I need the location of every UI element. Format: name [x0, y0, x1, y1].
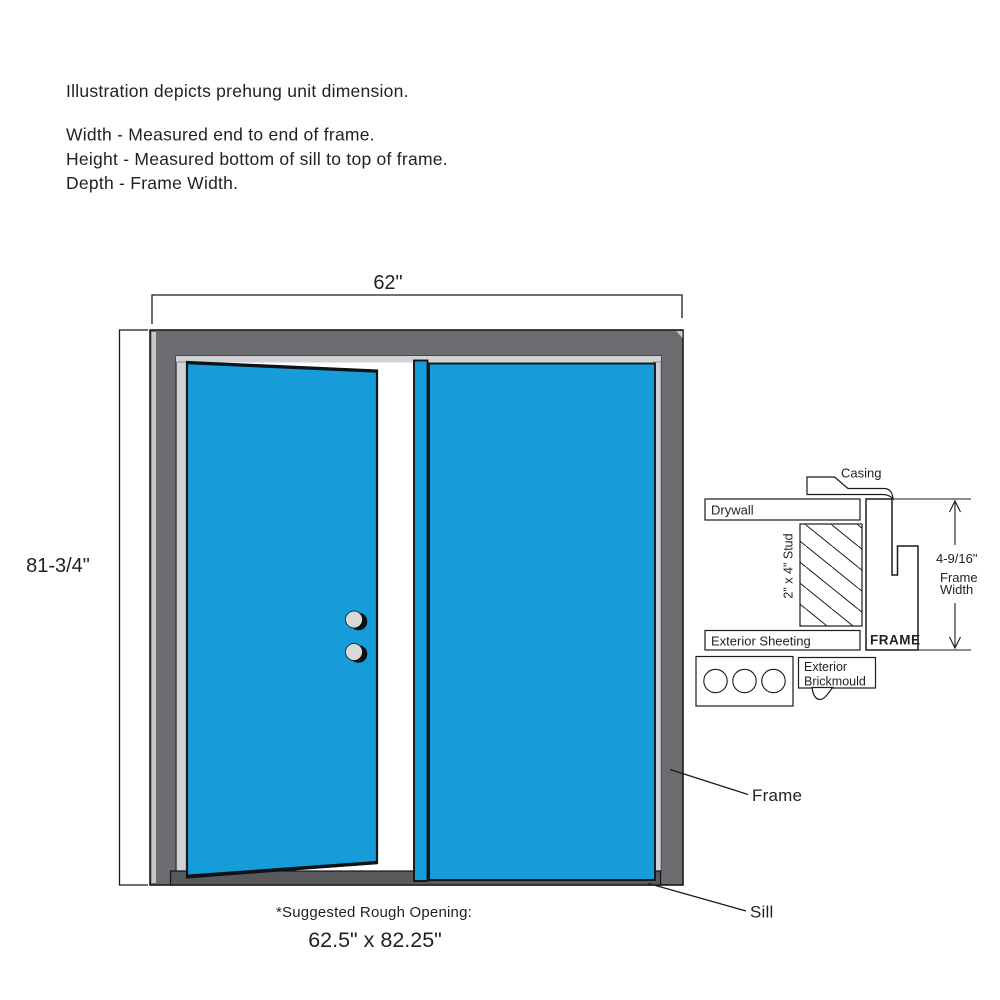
- frame-profile-label: FRAME: [870, 633, 921, 648]
- astragal: [414, 361, 428, 882]
- width-dimension-label: 62": [373, 272, 402, 294]
- door-dimension-illustration: Illustration depicts prehung unit dimens…: [0, 0, 1000, 1000]
- description-text: Illustration depicts prehung unit dimens…: [66, 81, 448, 193]
- drywall-label: Drywall: [711, 503, 754, 518]
- rough-opening: *Suggested Rough Opening: 62.5" x 82.25": [276, 904, 472, 952]
- rough-opening-value: 62.5" x 82.25": [308, 928, 442, 952]
- stud-label: 2" x 4" Stud: [782, 533, 796, 598]
- width-dimension: 62": [152, 272, 682, 324]
- frame-left-bevel: [152, 332, 157, 883]
- stud-section: [800, 524, 862, 626]
- exterior-sheeting-label: Exterior Sheeting: [711, 634, 811, 649]
- brickmould-bead-1: [704, 669, 727, 692]
- door-unit: [150, 330, 683, 885]
- right-door-panel: [429, 364, 655, 881]
- sill-callout: Sill: [649, 884, 774, 922]
- door-knob: [346, 644, 363, 661]
- frame-callout-label: Frame: [752, 786, 802, 805]
- note-line-3: Height - Measured bottom of sill to top …: [66, 149, 448, 169]
- frame-width-value: 4-9/16": [936, 551, 978, 566]
- brickmould-bead-2: [733, 669, 756, 692]
- height-dimension-label: 81-3/4": [26, 555, 90, 577]
- width-dimension-line: [152, 295, 682, 324]
- frame-jamb-profile: [866, 499, 918, 650]
- casing-label: Casing: [841, 466, 881, 481]
- note-line-2: Width - Measured end to end of frame.: [66, 125, 375, 145]
- note-line-1: Illustration depicts prehung unit dimens…: [66, 81, 409, 101]
- cross-section-detail: Casing Drywall 2" x 4" Stud Exterior She…: [696, 466, 978, 707]
- brickmould-label-tail: [812, 688, 833, 700]
- illustration-canvas: Illustration depicts prehung unit dimens…: [0, 0, 1000, 1000]
- brickmould-label-line1: Exterior: [804, 660, 847, 674]
- deadbolt-knob: [346, 611, 363, 628]
- rough-opening-caption: *Suggested Rough Opening:: [276, 904, 472, 921]
- frame-callout: Frame: [670, 770, 802, 806]
- height-dimension: 81-3/4": [26, 330, 148, 885]
- note-line-4: Depth - Frame Width.: [66, 173, 238, 193]
- brickmould-bead-3: [762, 669, 785, 692]
- sill-callout-line: [649, 884, 747, 912]
- brickmould-label-line2: Brickmould: [804, 675, 866, 689]
- height-dimension-line: [120, 330, 149, 885]
- frame-width-word2: Width: [940, 582, 973, 597]
- sill-callout-label: Sill: [750, 903, 773, 922]
